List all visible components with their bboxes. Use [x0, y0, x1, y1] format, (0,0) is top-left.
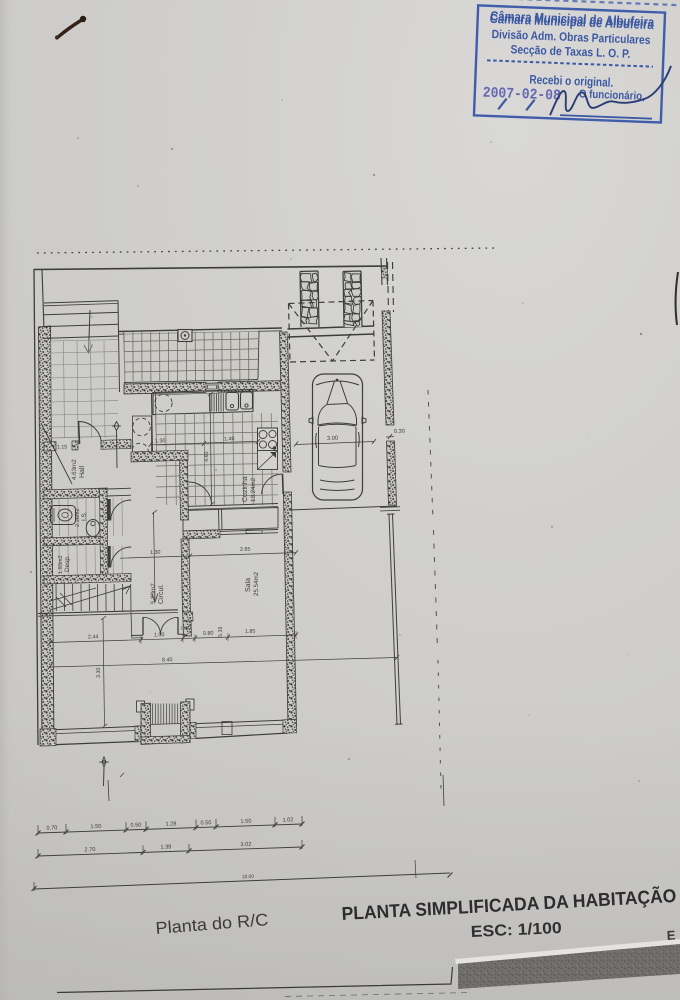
svg-text:0.30: 0.30 — [181, 626, 191, 632]
svg-text:I.S.: I.S. — [81, 511, 88, 521]
svg-text:1.15: 1.15 — [57, 445, 67, 451]
svg-text:0.80: 0.80 — [203, 631, 214, 637]
svg-text:3.02: 3.02 — [240, 842, 251, 848]
svg-text:Cozinha: Cozinha — [241, 476, 249, 502]
svg-text:4.63m2: 4.63m2 — [71, 459, 78, 480]
svg-text:1.30: 1.30 — [150, 550, 161, 556]
svg-text:Circul.: Circul. — [157, 584, 165, 604]
svg-text:1.39: 1.39 — [160, 844, 171, 850]
svg-text:0.30: 0.30 — [394, 429, 405, 435]
svg-text:Desp.: Desp. — [64, 555, 71, 572]
svg-text:0.50: 0.50 — [200, 820, 211, 826]
svg-text:25.54m2: 25.54m2 — [253, 571, 260, 596]
svg-text:1.28: 1.28 — [165, 821, 176, 827]
svg-text:5.83m2: 5.83m2 — [150, 583, 157, 604]
svg-text:10.00: 10.00 — [242, 874, 255, 880]
svg-text:3.30: 3.30 — [96, 668, 102, 679]
svg-text:8.40: 8.40 — [162, 657, 173, 663]
svg-text:5.35: 5.35 — [218, 627, 224, 638]
svg-text:2.36m2: 2.36m2 — [75, 508, 81, 527]
svg-text:2.65: 2.65 — [240, 547, 251, 553]
svg-text:1.50: 1.50 — [240, 819, 251, 825]
svg-text:2.70: 2.70 — [84, 847, 95, 853]
svg-text:1.30: 1.30 — [155, 438, 166, 444]
svg-text:1.50: 1.50 — [90, 824, 101, 830]
svg-text:2007-02-08: 2007-02-08 — [482, 85, 561, 105]
svg-text:1.46: 1.46 — [224, 436, 235, 442]
svg-text:0.50: 0.50 — [130, 823, 141, 829]
svg-text:Sala: Sala — [244, 578, 252, 592]
svg-text:2.44: 2.44 — [88, 634, 99, 640]
svg-text:13.24m2: 13.24m2 — [250, 477, 257, 502]
svg-text:1.02: 1.02 — [282, 817, 293, 823]
svg-text:Hall: Hall — [78, 465, 86, 478]
svg-text:0.70: 0.70 — [46, 825, 57, 831]
svg-text:1.85: 1.85 — [245, 629, 256, 635]
svg-text:4.60: 4.60 — [204, 452, 210, 463]
svg-text:1.93m2: 1.93m2 — [58, 555, 64, 574]
svg-text:3.00: 3.00 — [327, 435, 339, 442]
svg-text:1.00: 1.00 — [154, 632, 165, 638]
